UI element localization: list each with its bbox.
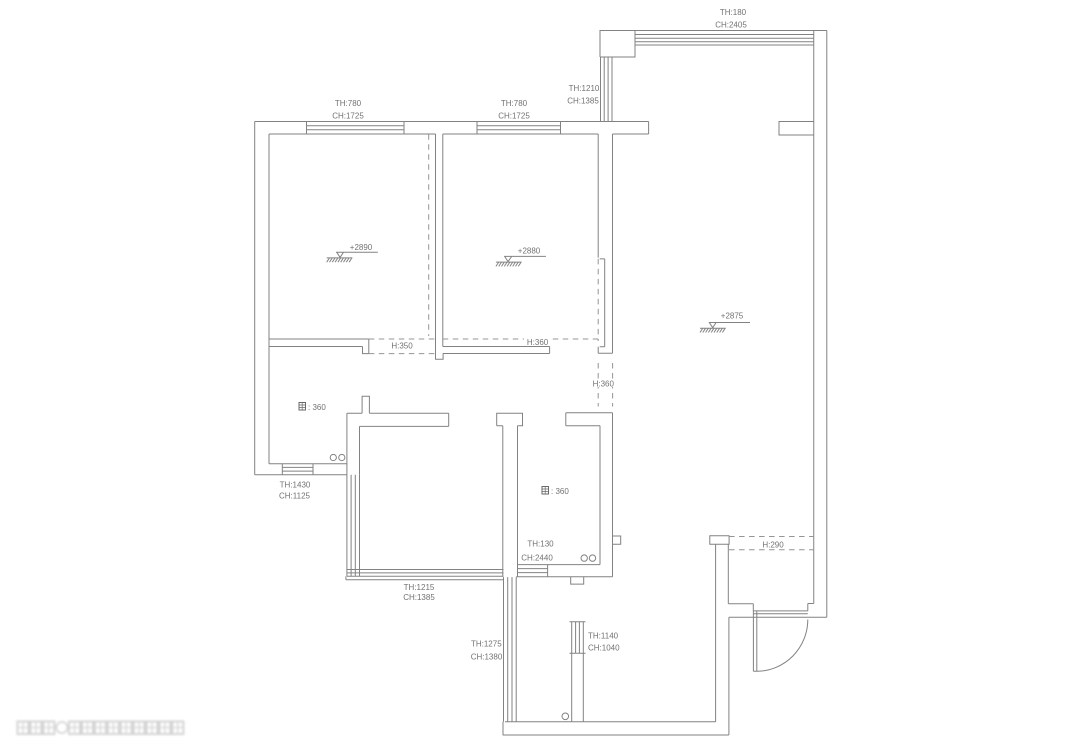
svg-text:CH:1125: CH:1125 [279, 492, 311, 501]
svg-text:CH:1380: CH:1380 [471, 653, 503, 662]
svg-text:+2890: +2890 [350, 243, 373, 252]
svg-text:: 360: : 360 [308, 403, 326, 412]
svg-text:TH:180: TH:180 [720, 8, 747, 17]
svg-text:H:350: H:350 [391, 342, 413, 351]
svg-text:CH:1725: CH:1725 [332, 112, 364, 121]
svg-text:+2875: +2875 [721, 312, 744, 321]
svg-text:CH:1385: CH:1385 [567, 97, 599, 106]
svg-text:H:360: H:360 [593, 380, 615, 389]
svg-text:TH:130: TH:130 [527, 540, 554, 549]
svg-text:TH:1430: TH:1430 [280, 481, 311, 490]
svg-text:TH:780: TH:780 [501, 99, 528, 108]
svg-text:CH:2405: CH:2405 [715, 21, 747, 30]
svg-text:TH:1210: TH:1210 [569, 84, 600, 93]
svg-text:H:360: H:360 [527, 338, 549, 347]
svg-text:H:290: H:290 [762, 541, 784, 550]
svg-text:CH:1725: CH:1725 [498, 112, 530, 121]
svg-text:TH:780: TH:780 [335, 99, 362, 108]
svg-text:TH:1140: TH:1140 [588, 632, 619, 641]
svg-text:TH:1275: TH:1275 [471, 640, 502, 649]
svg-text:: 360: : 360 [551, 487, 569, 496]
svg-text:TH:1215: TH:1215 [404, 583, 435, 592]
svg-text:CH:2440: CH:2440 [521, 554, 553, 563]
svg-text:+2880: +2880 [518, 246, 541, 255]
svg-text:CH:1385: CH:1385 [403, 593, 435, 602]
svg-text:CH:1040: CH:1040 [588, 644, 620, 653]
